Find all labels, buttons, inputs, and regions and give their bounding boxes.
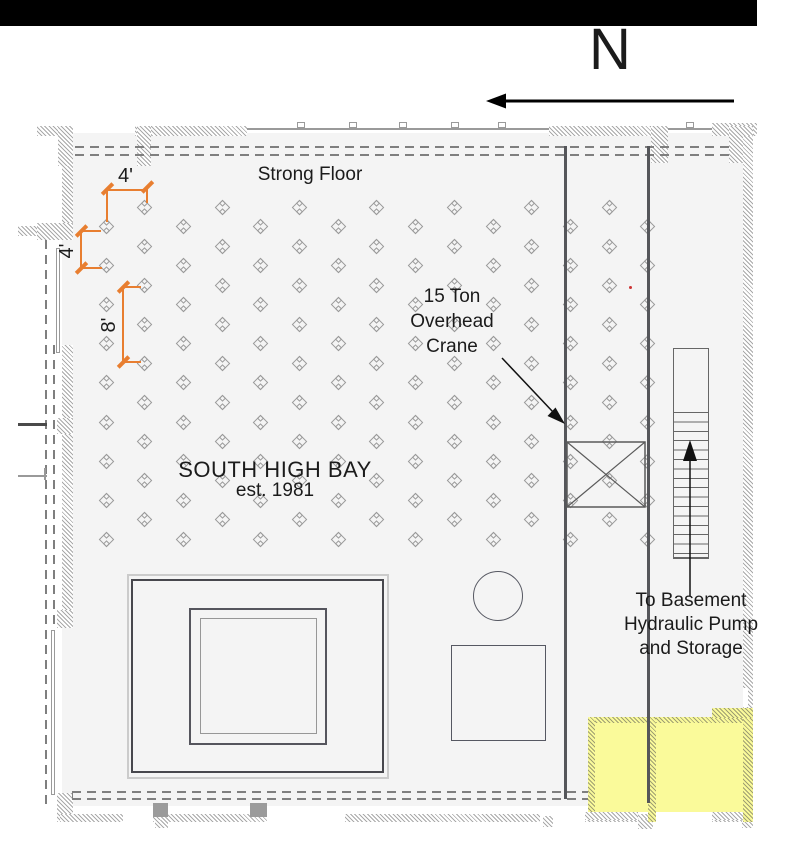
dimension-extension-line xyxy=(124,286,141,288)
tie-down-marker xyxy=(524,317,540,333)
tie-down-marker xyxy=(253,258,269,274)
tie-down-marker xyxy=(408,492,424,508)
basement-label-line: and Storage xyxy=(608,637,774,661)
tie-down-marker xyxy=(601,199,617,215)
crane-label: 15 Ton Overhead Crane xyxy=(390,284,514,359)
wall-segment xyxy=(62,166,73,225)
tie-down-marker xyxy=(485,453,501,469)
dashed-reference-line xyxy=(75,154,730,156)
tie-down-marker xyxy=(330,219,346,235)
tie-down-marker xyxy=(524,473,540,489)
window-mullion-tick xyxy=(399,122,407,128)
tie-down-marker xyxy=(447,395,463,411)
basement-label: To Basement Hydraulic Pump and Storage xyxy=(608,589,774,661)
door-leaf xyxy=(51,630,55,795)
wall-column xyxy=(651,126,668,163)
dashed-reference-line xyxy=(75,146,730,148)
tie-down-marker xyxy=(524,277,540,293)
wall-column xyxy=(155,820,168,828)
wall-segment xyxy=(60,814,123,822)
tie-down-marker xyxy=(137,199,153,215)
window-mullion-tick xyxy=(451,122,459,128)
crane-rail-right xyxy=(647,146,650,803)
tie-down-marker xyxy=(137,395,153,411)
room-wall xyxy=(712,708,753,718)
tie-down-marker xyxy=(176,297,192,313)
tie-down-marker xyxy=(292,317,308,333)
tie-down-marker xyxy=(485,492,501,508)
tie-down-marker xyxy=(601,317,617,333)
crane-label-line: Overhead xyxy=(390,309,514,334)
tie-down-marker xyxy=(98,375,114,391)
tie-down-marker xyxy=(137,512,153,528)
room-wall xyxy=(588,717,595,813)
tie-down-marker xyxy=(601,277,617,293)
wall-segment xyxy=(135,126,247,136)
strong-floor-label: Strong Floor xyxy=(240,164,380,186)
window-mullion-tick xyxy=(349,122,357,128)
tie-down-marker xyxy=(447,199,463,215)
crane-label-line: 15 Ton xyxy=(390,284,514,309)
tie-down-marker xyxy=(447,512,463,528)
tie-down-marker xyxy=(253,219,269,235)
wall-column xyxy=(250,803,267,817)
dashed-reference-line xyxy=(45,240,47,810)
test-pit-inner-outline xyxy=(200,618,317,734)
tie-down-marker xyxy=(330,375,346,391)
stairs-up-arrow-icon xyxy=(680,438,700,598)
crane-label-line: Crane xyxy=(390,334,514,359)
tie-down-marker xyxy=(485,219,501,235)
tie-down-marker xyxy=(292,434,308,450)
tie-down-marker xyxy=(137,434,153,450)
dimension-extension-line xyxy=(82,267,102,269)
basement-label-line: Hydraulic Pump xyxy=(608,613,774,637)
crane-bridge-symbol xyxy=(566,441,646,508)
tie-down-marker xyxy=(137,317,153,333)
wall-column xyxy=(57,418,73,434)
room-wall xyxy=(743,708,753,822)
tie-down-marker xyxy=(524,199,540,215)
tie-down-marker xyxy=(408,414,424,430)
tie-down-marker xyxy=(369,238,385,254)
tie-down-marker xyxy=(176,219,192,235)
tie-down-marker xyxy=(176,414,192,430)
tie-down-marker xyxy=(369,317,385,333)
room-wall xyxy=(585,812,638,820)
window-line xyxy=(247,128,549,130)
tie-down-marker xyxy=(98,532,114,548)
tie-down-marker xyxy=(253,414,269,430)
dimension-extension-line xyxy=(124,361,141,363)
tie-down-marker xyxy=(137,473,153,489)
tie-down-marker xyxy=(292,238,308,254)
tie-down-marker xyxy=(408,258,424,274)
tie-down-marker xyxy=(601,512,617,528)
dashed-line-end xyxy=(72,791,73,800)
tie-down-marker xyxy=(330,258,346,274)
highlighted-rooms xyxy=(588,717,752,812)
tie-down-marker xyxy=(524,512,540,528)
bay-subtitle: est. 1981 xyxy=(155,480,395,502)
tie-down-marker xyxy=(214,277,230,293)
wall-column xyxy=(58,126,73,166)
tie-down-marker xyxy=(330,336,346,352)
window-mullion-tick xyxy=(498,122,506,128)
tie-down-marker xyxy=(214,395,230,411)
tie-down-marker xyxy=(176,532,192,548)
floor-square-feature xyxy=(451,645,546,741)
dimension-extension-line xyxy=(106,191,108,222)
tie-down-marker xyxy=(524,434,540,450)
dimension-line xyxy=(122,287,124,363)
tie-down-marker xyxy=(408,375,424,391)
crane-arrow-icon xyxy=(495,352,571,430)
tie-down-marker xyxy=(408,453,424,469)
wall-column xyxy=(543,816,553,827)
tie-down-marker xyxy=(601,395,617,411)
exterior-stub-line xyxy=(18,423,47,426)
exterior-stub-line xyxy=(18,475,47,477)
tie-down-marker xyxy=(369,512,385,528)
tie-down-marker xyxy=(330,297,346,313)
tie-down-marker xyxy=(214,356,230,372)
tie-down-marker xyxy=(214,317,230,333)
basement-label-line: To Basement xyxy=(608,589,774,613)
dimension-extension-line xyxy=(146,191,148,203)
tie-down-marker xyxy=(137,356,153,372)
tie-down-marker xyxy=(447,473,463,489)
room-wall xyxy=(712,812,743,820)
wall-column xyxy=(153,803,168,817)
tie-down-marker xyxy=(98,414,114,430)
wall-notch xyxy=(743,688,748,707)
wall-segment xyxy=(62,345,73,610)
tie-down-marker xyxy=(137,238,153,254)
wall-column xyxy=(57,610,73,628)
dimension-extension-line xyxy=(82,230,101,232)
tie-down-marker xyxy=(176,258,192,274)
tie-down-marker xyxy=(98,453,114,469)
floor-plan-drawing: N xyxy=(0,0,790,856)
tie-down-marker xyxy=(485,532,501,548)
red-marker-dot xyxy=(629,286,632,289)
tie-down-marker xyxy=(447,238,463,254)
tie-down-marker xyxy=(408,532,424,548)
wall-segment xyxy=(345,814,540,822)
tie-down-marker xyxy=(601,238,617,254)
wall-segment xyxy=(18,226,37,236)
tie-down-marker xyxy=(253,336,269,352)
tie-down-marker xyxy=(601,356,617,372)
tie-down-marker xyxy=(292,277,308,293)
tie-down-marker xyxy=(447,434,463,450)
tie-down-marker xyxy=(369,277,385,293)
tie-down-marker xyxy=(524,238,540,254)
tie-down-marker xyxy=(214,238,230,254)
tie-down-marker xyxy=(330,414,346,430)
tie-down-marker xyxy=(253,297,269,313)
floor-circle-feature xyxy=(473,571,523,621)
tie-down-marker xyxy=(253,375,269,391)
tie-down-marker xyxy=(485,258,501,274)
tie-down-marker xyxy=(214,199,230,215)
exterior-stub-tick xyxy=(44,468,46,480)
tie-down-marker xyxy=(98,492,114,508)
tie-down-marker xyxy=(253,532,269,548)
dashed-reference-line xyxy=(53,345,55,630)
tie-down-marker xyxy=(176,375,192,391)
tie-down-marker xyxy=(292,199,308,215)
tie-down-marker xyxy=(292,395,308,411)
tie-down-marker xyxy=(369,434,385,450)
tie-down-marker xyxy=(214,512,230,528)
wall-segment xyxy=(549,126,651,136)
window-mullion-tick xyxy=(297,122,305,128)
tie-down-marker xyxy=(98,258,114,274)
tie-down-marker xyxy=(369,199,385,215)
dimension-vertical-label: 4' xyxy=(56,236,78,266)
tie-down-marker xyxy=(214,434,230,450)
tie-down-marker xyxy=(176,336,192,352)
tie-down-marker xyxy=(292,512,308,528)
tie-down-marker xyxy=(292,356,308,372)
dimension-double-label: 8' xyxy=(98,310,120,340)
tie-down-marker xyxy=(408,219,424,235)
tie-down-marker xyxy=(330,532,346,548)
tie-down-marker xyxy=(369,356,385,372)
tie-down-marker xyxy=(369,395,385,411)
window-mullion-tick xyxy=(686,122,694,128)
